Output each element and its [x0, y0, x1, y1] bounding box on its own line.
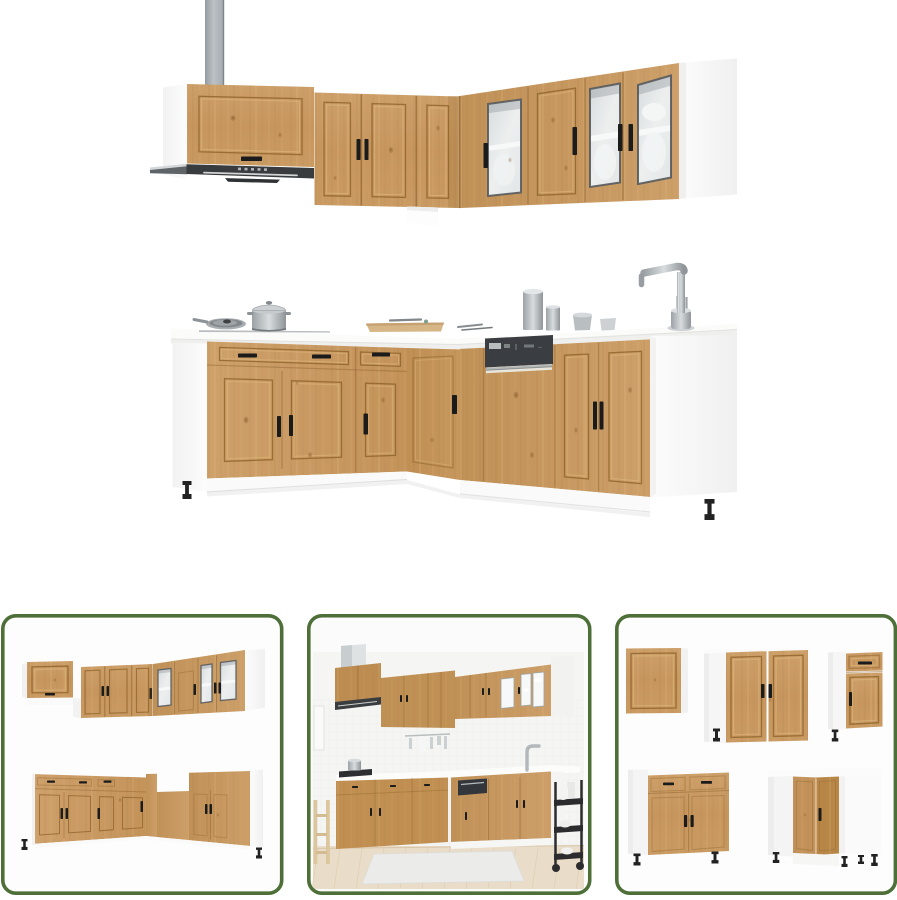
svg-text:◦◦: ◦◦ — [538, 345, 542, 351]
